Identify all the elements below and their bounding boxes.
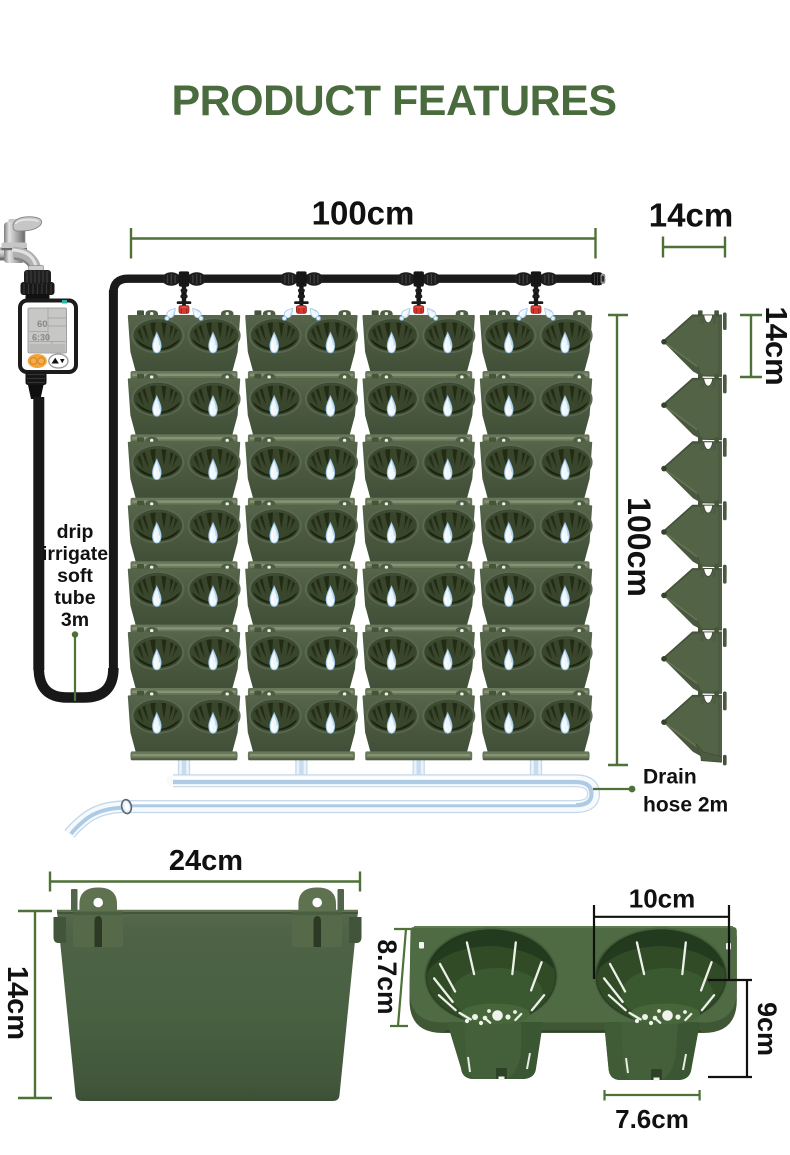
svg-text:14cm: 14cm (759, 306, 790, 385)
svg-text:7.6cm: 7.6cm (615, 1104, 689, 1134)
svg-text:tube: tube (54, 587, 95, 609)
svg-text:soft: soft (57, 565, 93, 587)
svg-text:100cm: 100cm (621, 497, 657, 597)
svg-text:3m: 3m (61, 609, 89, 631)
svg-text:PRODUCT FEATURES: PRODUCT FEATURES (171, 77, 616, 125)
svg-text:irrigate: irrigate (42, 543, 108, 565)
svg-text:14cm: 14cm (1, 966, 33, 1040)
svg-text:Drain: Drain (643, 766, 697, 789)
svg-text:drip: drip (57, 521, 94, 543)
svg-text:hose 2m: hose 2m (643, 794, 728, 817)
svg-text:6:30: 6:30 (32, 333, 50, 343)
svg-text:10cm: 10cm (629, 884, 696, 914)
svg-text:24cm: 24cm (169, 845, 243, 877)
svg-text:9cm: 9cm (752, 1002, 782, 1056)
svg-text:14cm: 14cm (649, 197, 733, 234)
svg-text:8.7cm: 8.7cm (372, 939, 402, 1014)
svg-text:100cm: 100cm (312, 195, 415, 232)
svg-text:60: 60 (37, 319, 48, 330)
